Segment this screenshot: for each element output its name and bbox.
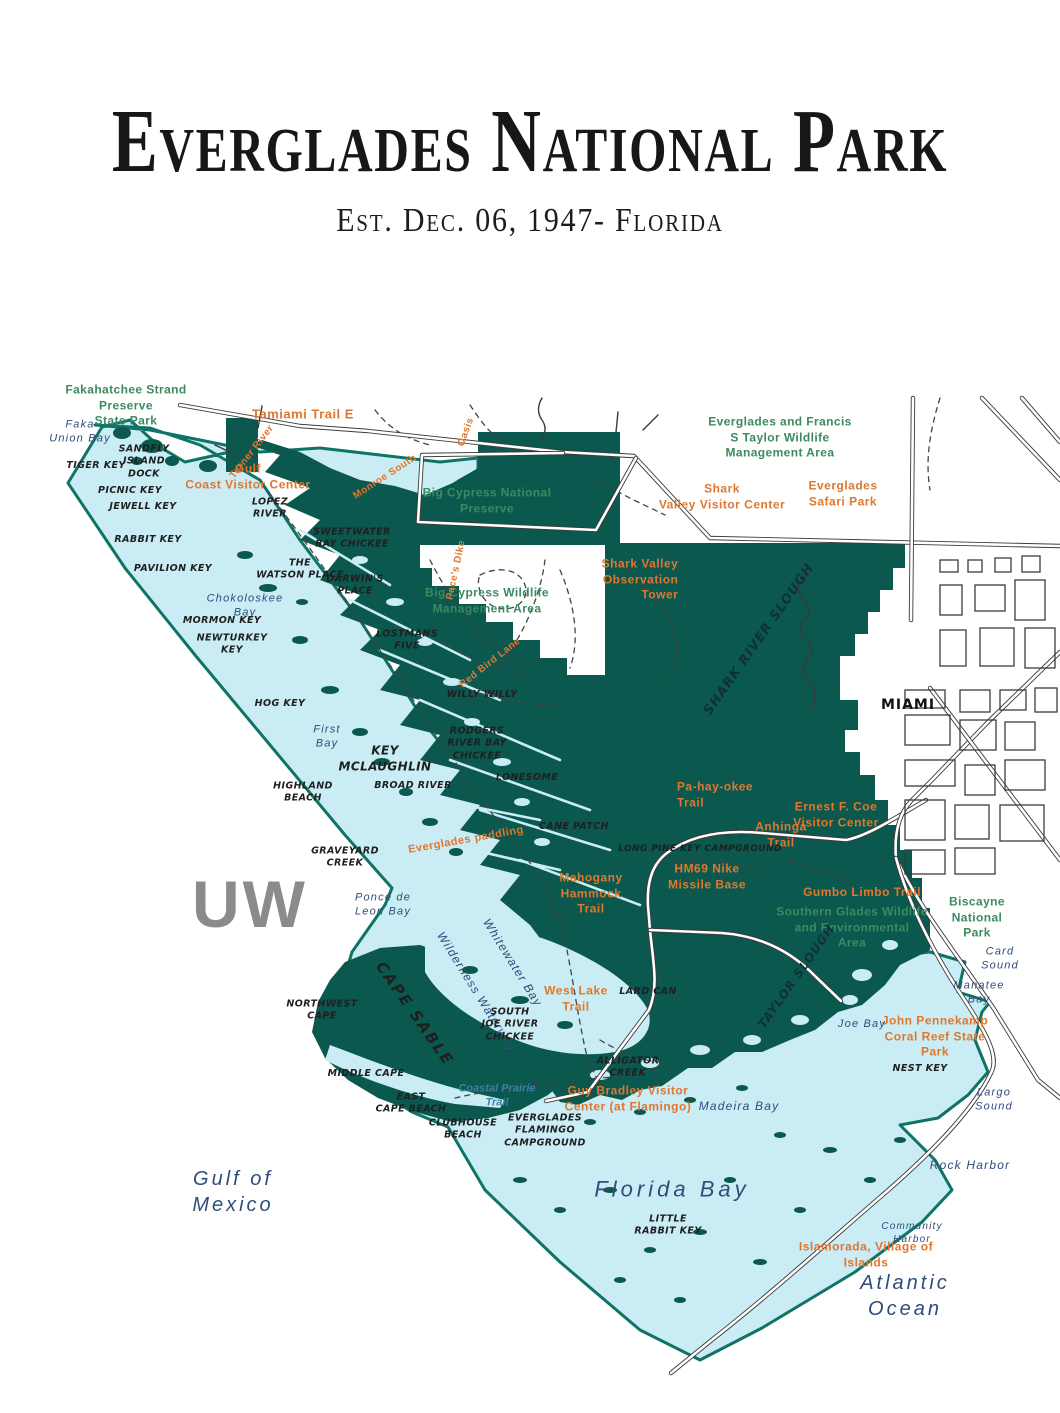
watermark: UW (192, 866, 308, 942)
header: Everglades National Park Est. Dec. 06, 1… (0, 0, 1060, 240)
poster: Everglades National Park Est. Dec. 06, 1… (0, 0, 1060, 1413)
page-title: Everglades National Park (106, 88, 954, 193)
page-subtitle: Est. Dec. 06, 1947- Florida (64, 202, 997, 240)
